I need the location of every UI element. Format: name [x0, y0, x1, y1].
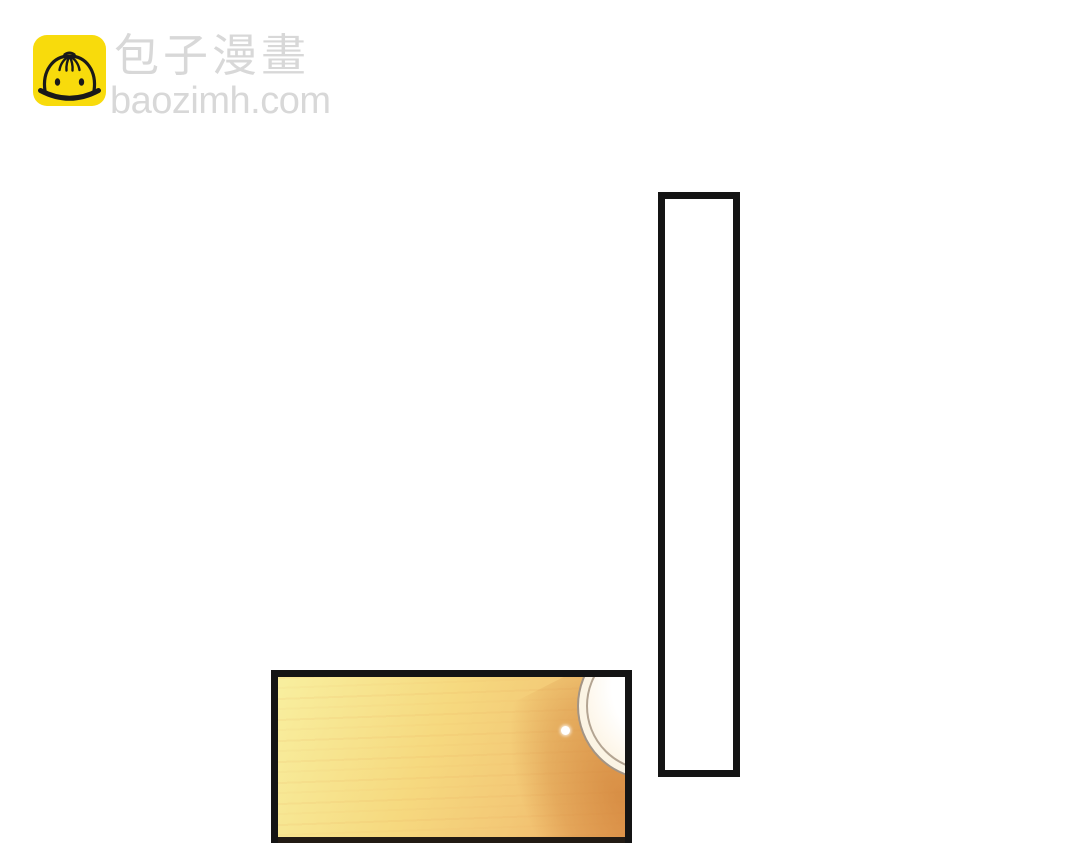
dark-object-edge: [278, 837, 625, 843]
comic-panel-empty: [658, 192, 740, 777]
table-surface: [278, 677, 625, 843]
baozi-bun-icon: [33, 35, 106, 106]
site-watermark: 包子漫畫 baozimh.com: [0, 0, 340, 130]
comic-panel-table: [271, 670, 632, 843]
highlight-dot: [561, 726, 570, 735]
site-domain: baozimh.com: [110, 82, 330, 120]
comic-reader-page[interactable]: 包子漫畫 baozimh.com: [0, 0, 1080, 843]
brand-name: 包子漫畫: [114, 33, 310, 78]
